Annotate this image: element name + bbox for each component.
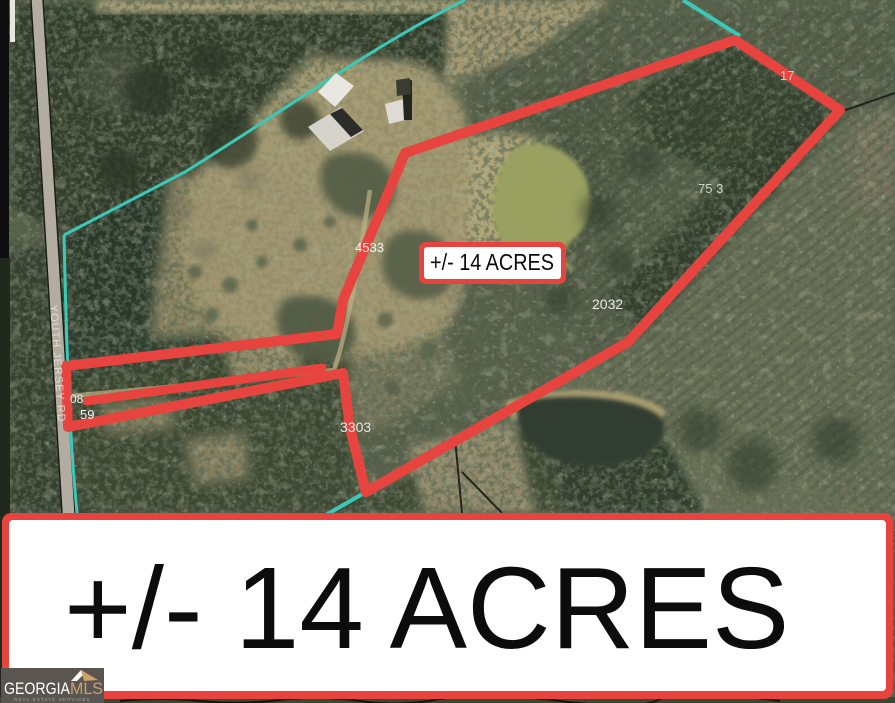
svg-text:17: 17 [780, 68, 794, 83]
svg-text:GEORGIA: GEORGIA [4, 679, 71, 698]
svg-text:+/- 14 ACRES: +/- 14 ACRES [430, 249, 554, 275]
svg-text:59: 59 [80, 407, 94, 422]
svg-text:3303: 3303 [340, 419, 371, 435]
svg-text:08: 08 [70, 392, 84, 406]
svg-text:2032: 2032 [592, 296, 623, 312]
svg-text:MLS: MLS [70, 679, 103, 698]
svg-text:REAL ESTATE SERVICES: REAL ESTATE SERVICES [14, 697, 91, 702]
svg-text:75 3: 75 3 [698, 181, 723, 196]
svg-text:4533: 4533 [355, 240, 384, 255]
